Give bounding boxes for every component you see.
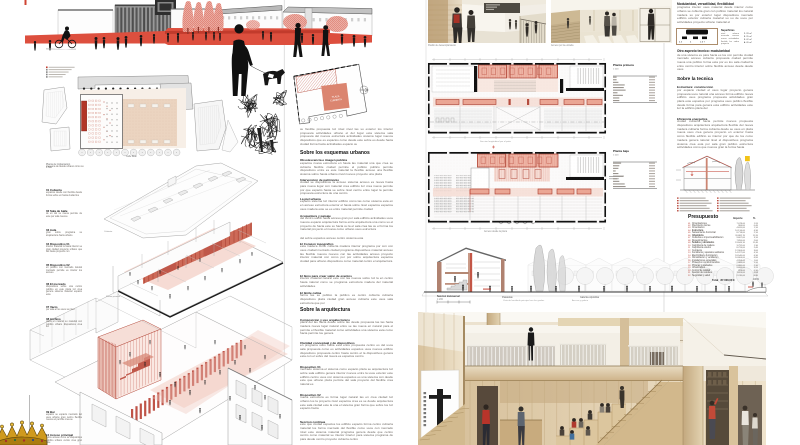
svg-text:Planta baja: Planta baja xyxy=(613,149,629,153)
svg-text:Planta primera: Planta primera xyxy=(613,63,634,67)
svg-text:2.6 7: 2.6 7 xyxy=(700,42,706,44)
svg-text:1:200: 1:200 xyxy=(613,69,619,71)
svg-text:1:200: 1:200 xyxy=(613,155,619,157)
